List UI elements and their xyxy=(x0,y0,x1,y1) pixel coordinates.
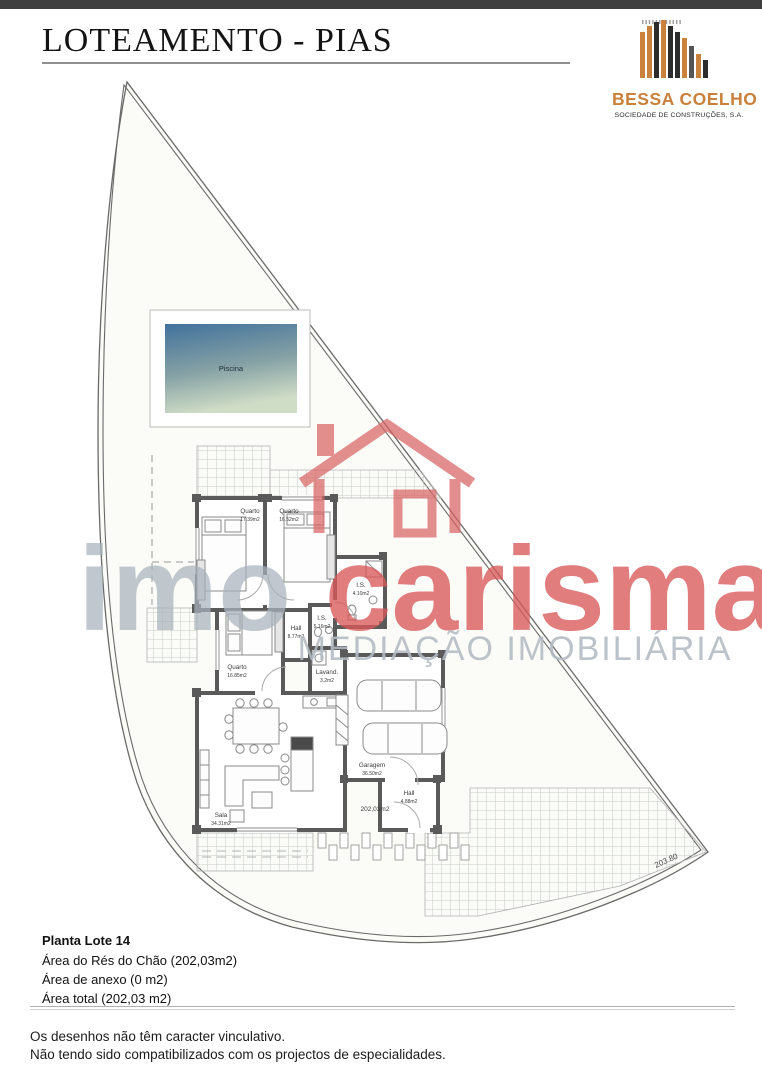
shelf xyxy=(200,750,209,808)
car-1 xyxy=(357,680,441,711)
title-rule xyxy=(42,62,570,64)
total-area-label: 202,03m2 xyxy=(361,806,390,813)
room-name-quarto-2: Quarto xyxy=(279,508,299,515)
room-area-lavand: 3.2m2 xyxy=(320,678,334,684)
logo-name: BESSA COELHO xyxy=(612,89,746,110)
company-logo: BESSA COELHO SOCIEDADE DE CONSTRUÇÕES, S… xyxy=(612,20,746,119)
disclaimer-line-1: Os desenhos não têm caracter vinculativo… xyxy=(30,1029,285,1044)
pool-label: Piscina xyxy=(219,364,244,373)
room-name-lavand: Lavand. xyxy=(316,669,339,676)
room-area-garagem: 36.50m2 xyxy=(362,771,382,777)
site-plan: Piscina xyxy=(0,0,762,1080)
lot-title: Planta Lote 14 xyxy=(42,933,237,948)
room-area-hall-2: 4.88m2 xyxy=(401,799,418,805)
room-area-quarto-3: 16.85m2 xyxy=(227,673,247,679)
room-name-quarto-1: Quarto xyxy=(240,508,260,515)
watermark-brand-gray: imo xyxy=(78,522,291,656)
watermark-tagline: MEDIAÇÃO IMOBILIÁRIA xyxy=(298,630,733,668)
footer-rule-top xyxy=(30,1006,735,1007)
garage-ladder xyxy=(336,695,348,745)
page-title: LOTEAMENTO - PIAS xyxy=(42,22,393,60)
room-name-hall-2: Hall xyxy=(404,790,415,797)
area-line-total: Área total (202,03 m2) xyxy=(42,991,237,1007)
area-line-annex: Área de anexo (0 m2) xyxy=(42,972,237,988)
buildings-icon xyxy=(612,20,746,82)
disclaimer-line-2: Não tendo sido compatibilizados com os p… xyxy=(30,1047,446,1062)
room-name-quarto-3: Quarto xyxy=(227,664,247,671)
car-2 xyxy=(363,723,447,754)
document-page: Piscina xyxy=(0,0,762,1080)
room-area-sala: 34.31m2 xyxy=(211,821,231,827)
logo-subtitle: SOCIEDADE DE CONSTRUÇÕES, S.A. xyxy=(612,112,746,119)
pool: Piscina xyxy=(150,310,310,427)
room-name-garagem: Garagem xyxy=(359,762,385,769)
room-name-sala: Sala xyxy=(215,812,228,819)
footer-rule-bottom xyxy=(30,1009,735,1010)
area-line-ground-floor: Área do Rés do Chão (202,03m2) xyxy=(42,953,237,969)
footer-block: Planta Lote 14 Área do Rés do Chão (202,… xyxy=(42,933,237,1010)
